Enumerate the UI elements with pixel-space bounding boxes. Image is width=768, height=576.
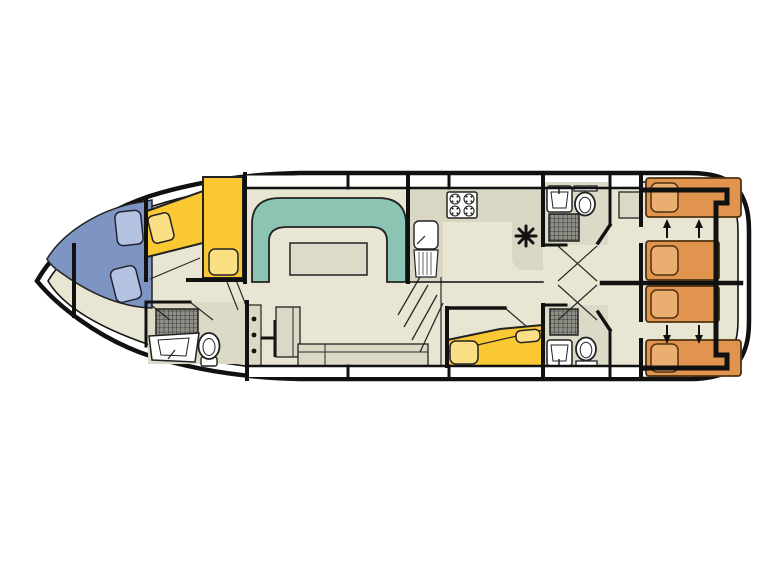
star-marker-icon [516, 226, 536, 246]
galley-sink-icon [414, 221, 438, 277]
helm-knob [252, 333, 257, 338]
aft-bottom-toilet-icon [576, 338, 597, 367]
side-deck-bottom [247, 367, 639, 377]
aft-top-toilet-icon [574, 186, 597, 216]
mid-bed-pillow [450, 341, 478, 364]
aft-top-shower-icon [549, 214, 579, 241]
stove-icon [447, 192, 477, 218]
mid-bed-pillow-2 [516, 329, 541, 343]
stern-pillow [651, 183, 678, 212]
tv-cabinet [276, 307, 300, 357]
fore-shower-icon [151, 305, 198, 337]
aft-top-sink-icon [547, 186, 572, 212]
boat-floor-plan [0, 0, 768, 576]
stern-shelf [619, 192, 641, 218]
helm-knob [252, 349, 257, 354]
fore-sink-icon [149, 333, 199, 362]
stern-pillow [651, 290, 678, 318]
aft-bottom-shower-icon [550, 309, 578, 335]
fore-toilet-icon [199, 333, 220, 366]
aft-bottom-sink-icon [547, 340, 572, 366]
dinette-table [290, 243, 367, 275]
fore-berth-pillow-2 [209, 249, 238, 275]
helm-knob [252, 317, 257, 322]
stern-pillow [651, 246, 678, 275]
floor-plan-canvas [0, 0, 768, 576]
saloon-bench [298, 344, 428, 366]
